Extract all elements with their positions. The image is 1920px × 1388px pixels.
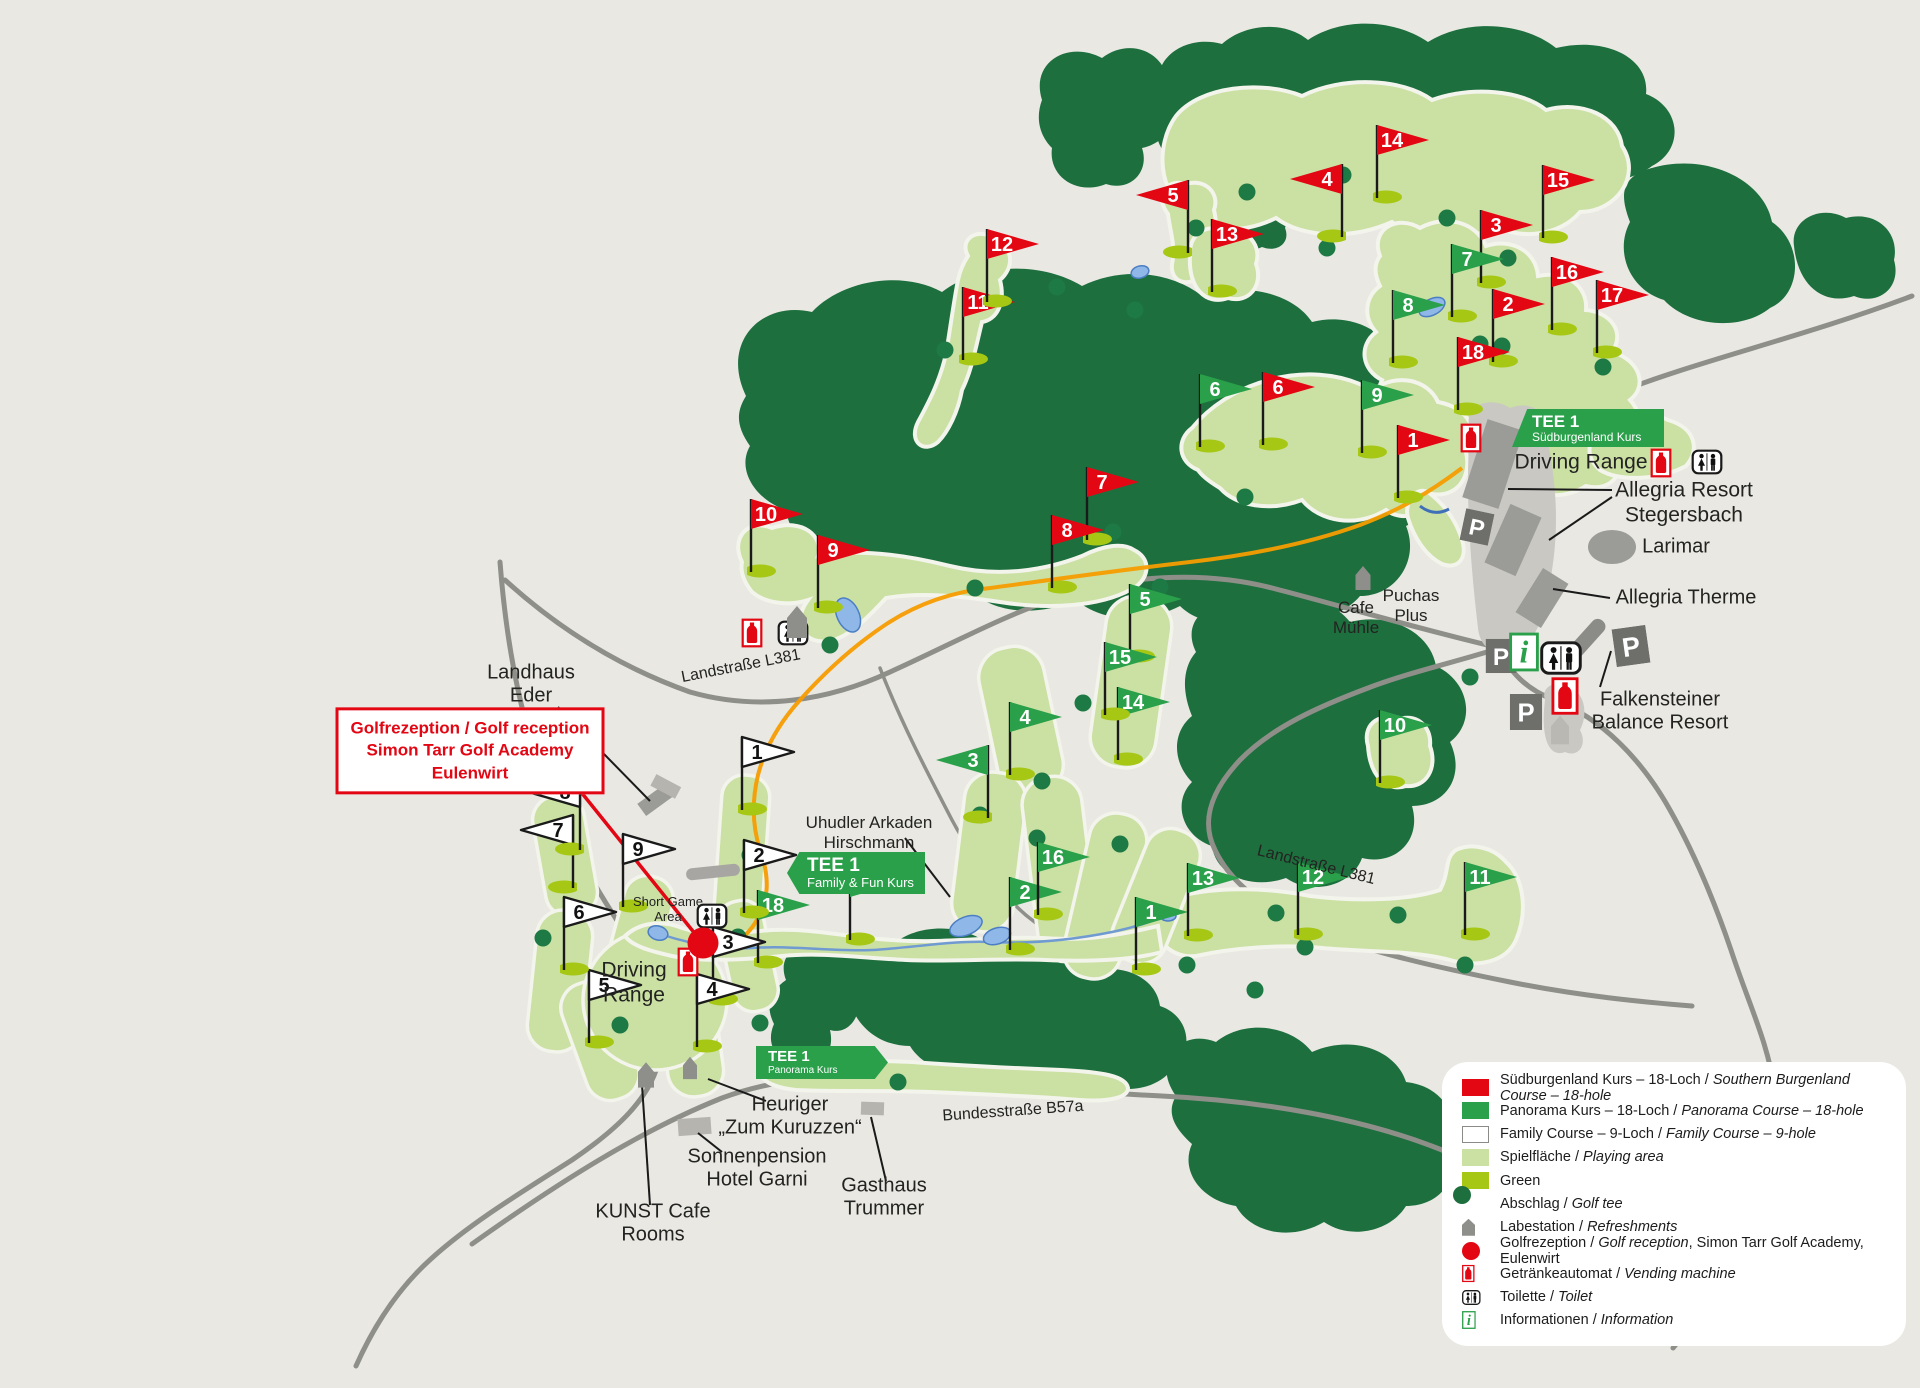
- toilet-icon: [1540, 641, 1582, 675]
- hole-flag-green-6: 6: [1196, 367, 1258, 453]
- svg-text:3: 3: [967, 750, 978, 772]
- golf-tee-dot: [1457, 957, 1474, 974]
- golf-course-map: 1234567891011121314151617181234567891011…: [0, 0, 1920, 1388]
- svg-text:17: 17: [1601, 285, 1623, 307]
- svg-text:6: 6: [1272, 377, 1283, 399]
- svg-text:4: 4: [1019, 707, 1031, 729]
- refreshment-station-icon: [787, 606, 807, 638]
- legend-item-reception: Golfrezeption / Golf reception, Simon Ta…: [1462, 1239, 1886, 1262]
- vending-machine-icon: [742, 619, 763, 648]
- hole-flag-red-15: 15: [1539, 158, 1601, 244]
- lightgreen-legend-swatch: [1462, 1149, 1490, 1166]
- allegria-resort-label: Allegria ResortStegersbach: [1615, 478, 1753, 527]
- information-icon: i: [1462, 1311, 1476, 1329]
- hole-flag-red-17: 17: [1593, 273, 1655, 359]
- hole-flag-green-3: 3: [930, 738, 992, 824]
- hole-flag-white-1: 1: [738, 730, 800, 816]
- golf-reception-icon: [687, 927, 719, 959]
- legend-item-info: iInformationen / Information: [1462, 1309, 1886, 1332]
- svg-text:4: 4: [1321, 169, 1333, 191]
- info-icon: i: [1462, 1311, 1476, 1329]
- tee-swatch: [1453, 1186, 1471, 1204]
- pin-icon: [1356, 566, 1371, 590]
- falkensteiner-label: FalkensteinerBalance Resort: [1592, 689, 1729, 736]
- hole-flag-green-15: 15: [1101, 635, 1163, 721]
- refreshment-station-icon: [638, 1062, 654, 1088]
- hole-flag-red-18: 18: [1454, 330, 1516, 416]
- svg-text:P: P: [1493, 644, 1509, 671]
- svg-text:8: 8: [1402, 295, 1413, 317]
- hole-flag-red-5: 5: [1130, 173, 1192, 259]
- svg-text:9: 9: [827, 540, 838, 562]
- golf-tee-dot: [1247, 982, 1264, 999]
- parking-icon: P: [1510, 694, 1542, 730]
- legend-item-yellowgreen: Green: [1462, 1169, 1886, 1192]
- allegria-therme-label: Allegria Therme: [1616, 586, 1757, 609]
- svg-text:15: 15: [1109, 647, 1131, 669]
- hole-flag-red-6: 6: [1259, 365, 1321, 451]
- svg-text:16: 16: [1042, 847, 1064, 869]
- pin-icon: [638, 1062, 654, 1088]
- refreshment-station-icon: [1551, 716, 1569, 745]
- golf-tee-dot: [1049, 279, 1066, 296]
- toilet-icon: [1540, 641, 1582, 675]
- svg-text:1: 1: [751, 742, 762, 764]
- gasthaus-trummer-label: GasthausTrummer: [841, 1175, 927, 1222]
- golf-tee-dot: [967, 580, 984, 597]
- refreshment-station-icon: [683, 1057, 697, 1079]
- legend-item-toilet: Toilette / Toilet: [1462, 1286, 1886, 1309]
- sonnenpension-label: SonnenpensionHotel Garni: [687, 1146, 826, 1193]
- cafe-muehle-label: CafeMühle: [1333, 598, 1379, 638]
- golf-reception-callout: Golfrezeption / Golf receptionSimon Tarr…: [336, 707, 605, 794]
- parking-icon: P: [1612, 625, 1651, 667]
- vending-icon: [742, 619, 763, 648]
- golf-tee-dot: [1237, 489, 1254, 506]
- driving-range-family-label: DrivingRange: [601, 958, 666, 1007]
- tee1-panorama-banner: TEE 1Panorama Kurs: [756, 1046, 888, 1079]
- banner-subtitle: Family & Fun Kurs: [807, 876, 925, 891]
- svg-text:7: 7: [1461, 249, 1472, 271]
- legend-item-text: Informationen / Information: [1500, 1312, 1673, 1328]
- vending-icon: [1461, 424, 1482, 453]
- info-icon: i: [1509, 633, 1539, 672]
- pin-icon: [683, 1057, 697, 1079]
- svg-text:3: 3: [722, 932, 733, 954]
- vending-icon: [1651, 449, 1672, 478]
- legend-item-text: Abschlag / Golf tee: [1500, 1196, 1623, 1212]
- vending-icon: [1462, 1265, 1475, 1282]
- svg-text:P: P: [1517, 700, 1534, 728]
- parking-icon: P: [1510, 694, 1542, 730]
- vending-machine-icon: [1551, 677, 1578, 715]
- hole-flag-red-14: 14: [1373, 118, 1435, 204]
- legend-item-tee: Abschlag / Golf tee: [1462, 1192, 1886, 1215]
- legend-item-text: Spielfläche / Playing area: [1500, 1149, 1664, 1165]
- banner-title: TEE 1: [768, 1049, 888, 1066]
- information-icon: i: [1509, 633, 1539, 672]
- svg-text:8: 8: [1061, 520, 1072, 542]
- legend-item-text: Panorama Kurs – 18-Loch / Panorama Cours…: [1500, 1103, 1864, 1119]
- uhudler-arkaden-label: Uhudler ArkadenHirschmann: [806, 813, 933, 853]
- hole-flag-green-16: 16: [1034, 835, 1096, 921]
- legend-item-lightgreen: Spielfläche / Playing area: [1462, 1146, 1886, 1169]
- golf-tee-dot: [1127, 302, 1144, 319]
- red-swatch: [1462, 1079, 1489, 1096]
- reception-icon: [687, 927, 719, 959]
- hole-flag-red-10: 10: [747, 492, 809, 578]
- banner-subtitle: Südburgenland Kurs: [1532, 431, 1664, 444]
- golf-tee-dot: [1075, 695, 1092, 712]
- svg-text:1: 1: [1145, 902, 1156, 924]
- golf-tee-dot: [1390, 907, 1407, 924]
- white-swatch: [1462, 1126, 1489, 1143]
- svg-text:6: 6: [1209, 379, 1220, 401]
- golf-tee-dot: [535, 930, 552, 947]
- golf-tee-dot: [1439, 210, 1456, 227]
- svg-text:11: 11: [1469, 867, 1490, 889]
- white-legend-swatch: [1462, 1126, 1490, 1143]
- heuriger-label: Heuriger„Zum Kuruzzen“: [718, 1094, 861, 1141]
- svg-text:6: 6: [573, 902, 584, 924]
- legend-item-text: Toilette / Toilet: [1500, 1289, 1592, 1305]
- golf-tee-dot: [1239, 184, 1256, 201]
- hole-flag-green-13: 13: [1184, 856, 1246, 942]
- parking-icon: P: [1612, 625, 1651, 667]
- svg-text:10: 10: [1384, 715, 1406, 737]
- golf-tee-dot: [1462, 669, 1479, 686]
- golf-tee-dot: [1268, 905, 1285, 922]
- tee1-suedburgenland-banner: TEE 1Südburgenland Kurs: [1512, 409, 1664, 447]
- legend-item-text: Getränkeautomat / Vending machine: [1500, 1266, 1736, 1282]
- svg-text:i: i: [1467, 1313, 1471, 1329]
- svg-text:3: 3: [1490, 215, 1501, 237]
- svg-text:i: i: [1520, 634, 1529, 669]
- puchas-plus-label: PuchasPlus: [1383, 586, 1440, 626]
- legend-item-text: Green: [1500, 1173, 1540, 1189]
- svg-text:10: 10: [755, 504, 777, 526]
- hole-flag-green-4: 4: [1006, 695, 1068, 781]
- golf-tee-dot: [1112, 836, 1129, 853]
- kunst-cafe-label: KUNST CafeRooms: [595, 1201, 710, 1248]
- hole-flag-green-7: 7: [1448, 237, 1510, 323]
- toilet-icon: [1692, 450, 1723, 475]
- banner-title: TEE 1: [1532, 412, 1664, 431]
- driving-range-top-label: Driving Range: [1514, 451, 1647, 476]
- landhaus-eder-label: LandhausEder: [487, 662, 575, 709]
- svg-text:2: 2: [753, 845, 764, 867]
- pin-icon: [787, 606, 807, 638]
- svg-text:5: 5: [1139, 589, 1150, 611]
- legend-item-red: Südburgenland Kurs – 18-Loch / Southern …: [1462, 1076, 1886, 1099]
- red-legend-swatch: [1462, 1079, 1490, 1096]
- refreshment-station-icon: [1356, 566, 1371, 590]
- svg-text:15: 15: [1547, 170, 1569, 192]
- legend-item-text: Family Course – 9-Loch / Family Course –…: [1500, 1126, 1816, 1142]
- svg-text:13: 13: [1216, 224, 1238, 246]
- legend-item-text: Labestation / Refreshments: [1500, 1219, 1677, 1235]
- svg-text:14: 14: [1381, 130, 1404, 152]
- vending-icon: [1551, 677, 1578, 715]
- green-swatch: [1462, 1102, 1489, 1119]
- toilet-icon: [1462, 1290, 1481, 1305]
- vending-machine-icon: [1651, 449, 1672, 478]
- hole-flag-green-8: 8: [1389, 283, 1451, 369]
- legend-item-vending: Getränkeautomat / Vending machine: [1462, 1262, 1886, 1285]
- svg-text:12: 12: [991, 234, 1013, 256]
- golf-tee-dot: [1595, 359, 1612, 376]
- hole-flag-green-9: 9: [1358, 373, 1420, 459]
- larimar-label: Larimar: [1642, 535, 1710, 558]
- pin-icon: [1551, 716, 1569, 745]
- tee1-family-banner: TEE 1Family & Fun Kurs: [787, 852, 925, 894]
- short-game-area-label: Short GameArea: [633, 894, 703, 924]
- svg-text:5: 5: [1167, 185, 1178, 207]
- svg-text:7: 7: [1096, 472, 1107, 494]
- info-legend-swatch: i: [1462, 1305, 1490, 1335]
- golf-tee-dot: [890, 1074, 907, 1091]
- hole-flag-red-8: 8: [1048, 508, 1110, 594]
- legend-item-white: Family Course – 9-Loch / Family Course –…: [1462, 1123, 1886, 1146]
- svg-text:2: 2: [1019, 882, 1030, 904]
- hole-flag-green-10: 10: [1376, 703, 1438, 789]
- map-legend: Südburgenland Kurs – 18-Loch / Southern …: [1442, 1062, 1906, 1346]
- hole-flag-red-13: 13: [1208, 212, 1270, 298]
- hole-flag-red-4: 4: [1284, 157, 1346, 243]
- hole-flag-green-11: 11: [1461, 855, 1523, 941]
- golf-tee-dot: [822, 637, 839, 654]
- vending-machine-icon: [1462, 1265, 1475, 1282]
- svg-text:9: 9: [632, 839, 643, 861]
- svg-text:4: 4: [706, 979, 718, 1001]
- toilet-icon: [1692, 450, 1723, 475]
- reception-legend-swatch: [1462, 1242, 1490, 1260]
- legend-item-green: Panorama Kurs – 18-Loch / Panorama Cours…: [1462, 1099, 1886, 1122]
- golf-tee-dot: [937, 342, 954, 359]
- svg-text:18: 18: [1462, 342, 1484, 364]
- hole-flag-white-4: 4: [693, 967, 755, 1053]
- reception-swatch: [1462, 1242, 1480, 1260]
- golf-tee-dot: [1297, 939, 1314, 956]
- banner-title: TEE 1: [807, 855, 925, 876]
- lightgreen-swatch: [1462, 1149, 1489, 1166]
- svg-text:9: 9: [1371, 385, 1382, 407]
- vending-machine-icon: [1461, 424, 1482, 453]
- hole-flag-red-12: 12: [983, 222, 1045, 308]
- hole-flag-red-9: 9: [814, 528, 876, 614]
- pin-legend-swatch: [1462, 1219, 1490, 1236]
- svg-text:13: 13: [1192, 868, 1214, 890]
- banner-subtitle: Panorama Kurs: [768, 1065, 888, 1076]
- green-legend-swatch: [1462, 1102, 1490, 1119]
- pin-swatch: [1462, 1219, 1475, 1236]
- toilet-icon: [1462, 1290, 1481, 1305]
- svg-text:16: 16: [1556, 262, 1578, 284]
